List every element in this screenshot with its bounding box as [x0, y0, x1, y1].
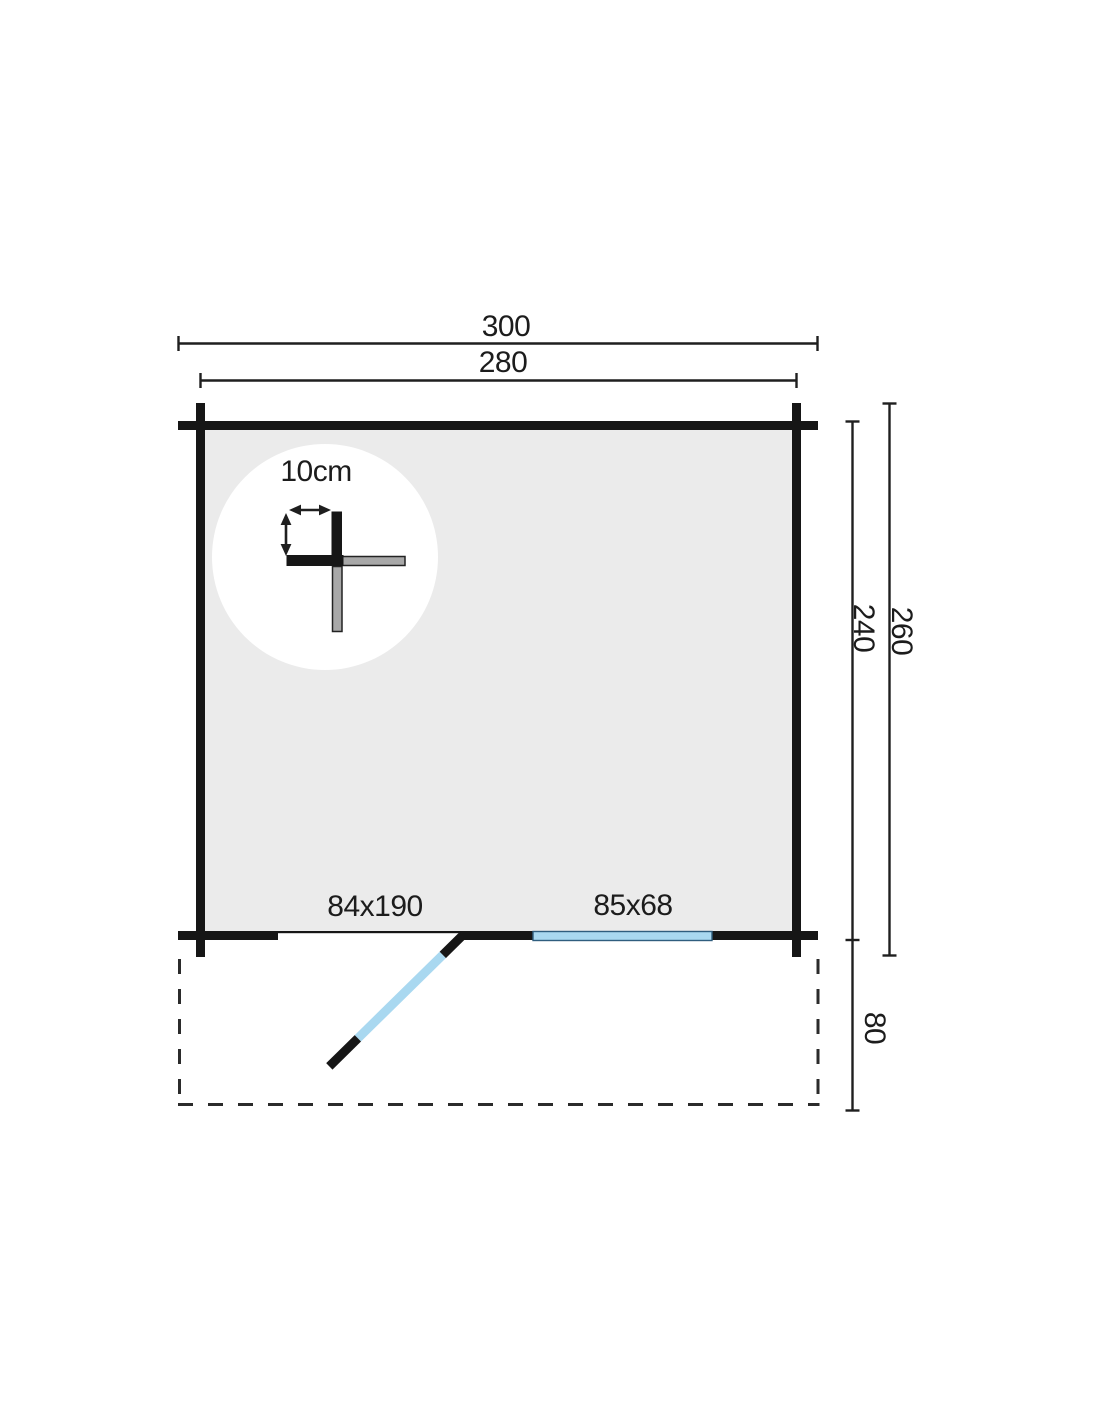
- dim-label-depth-outer: 260: [886, 607, 916, 656]
- log-spacing-label: 10cm: [280, 457, 351, 487]
- log-gray-horizontal: [338, 557, 405, 566]
- door-leaf-glass-segment: [355, 952, 446, 1042]
- floor-plan-drawing: [0, 0, 1100, 1422]
- window: [533, 932, 712, 941]
- floor-plan-diagram: 300 280 240 260 80 84x190 85x68 10cm: [0, 0, 1100, 1422]
- dim-label-terrace-depth: 80: [859, 1012, 889, 1044]
- terrace-outline: [178, 959, 820, 1106]
- door-threshold-line: [278, 931, 462, 933]
- dim-label-width-outer: 300: [482, 312, 531, 342]
- wall-top: [178, 421, 818, 430]
- window-size-label: 85x68: [593, 891, 672, 921]
- dim-label-depth-inner: 240: [848, 604, 878, 653]
- wall-right: [792, 403, 801, 957]
- dim-line-depth-outer: [883, 404, 897, 956]
- dim-label-width-inner: 280: [479, 348, 528, 378]
- door-opening: [278, 931, 462, 941]
- door-leaf-tip-segment: [326, 1035, 361, 1069]
- wall-left: [196, 403, 205, 957]
- door-leaf: [326, 931, 466, 1069]
- door-size-label: 84x190: [327, 892, 422, 922]
- dim-line-depth-inner: [846, 422, 860, 941]
- log-gray-vertical: [333, 567, 343, 632]
- wall-bottom: [178, 931, 818, 940]
- log-black-vertical: [332, 512, 343, 566]
